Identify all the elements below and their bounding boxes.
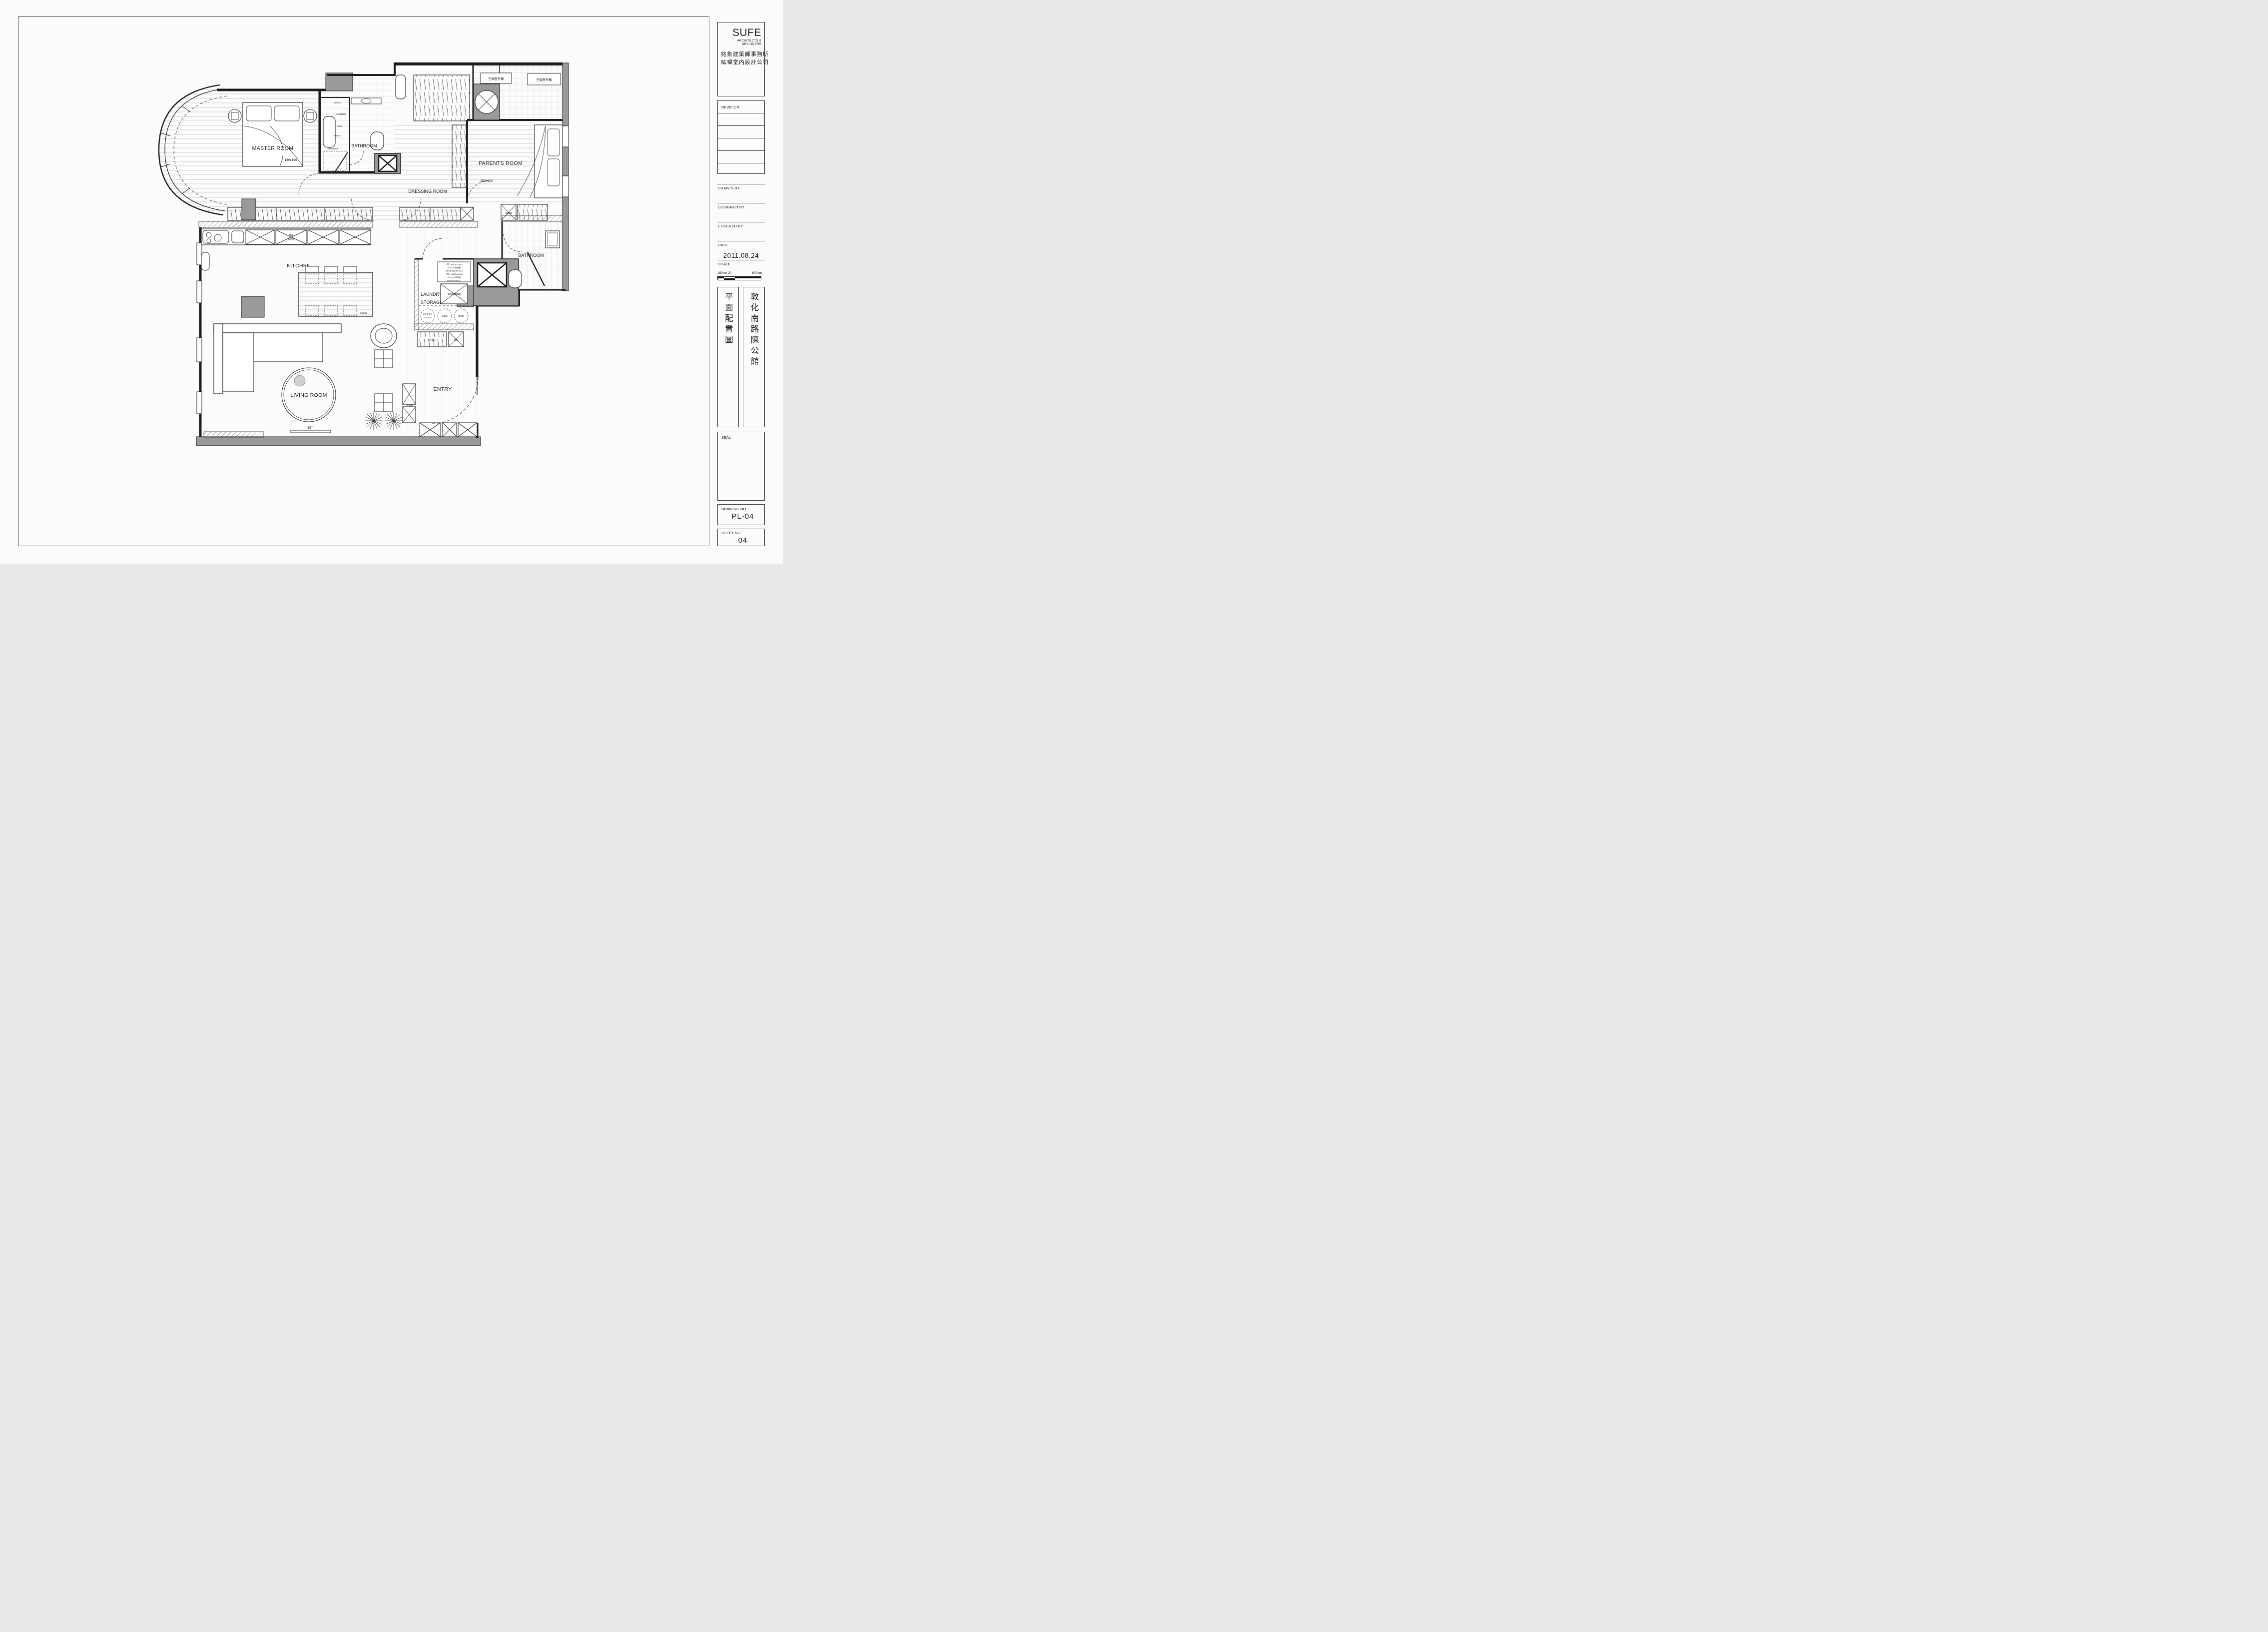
tv-55-label: 55" (308, 426, 313, 430)
ref-label-2: REF (353, 236, 358, 239)
laundry-label-2: STORAGE (421, 300, 443, 305)
drawing-sheet: MASTER ROOM 180x190 BATHTUB +25cm +0cm +… (0, 0, 783, 564)
drawing-no-label: DRAWING NO (721, 507, 764, 511)
checked-by-section: CHECKED BY (717, 222, 765, 241)
revision-row (718, 163, 764, 175)
bottom-exterior-wall (196, 437, 481, 446)
equip-cabinet-entry-label: 設備櫃 (407, 403, 413, 407)
phone-hub-label: 電話網路集線器 (448, 293, 461, 295)
master-room-label: MASTER ROOM (252, 145, 294, 151)
scale-marks-right: 600cm (752, 271, 762, 275)
living-window-3 (197, 338, 202, 362)
washer-note-6: W60*D59*H84.2 (447, 280, 461, 282)
level-0: +0cm (337, 125, 343, 127)
washer-note-3: W59.9*D63.5*H84.2 (446, 270, 463, 272)
dining-chairs (306, 266, 357, 272)
project-name-box: 敦化南路陳公館 (743, 287, 765, 427)
tv-55 (291, 430, 331, 433)
scale-bar (717, 276, 761, 280)
hall-basin (396, 75, 406, 99)
column-kitchen (241, 296, 264, 317)
designed-by-section: DESIGNED BY (717, 203, 765, 222)
pillow (246, 106, 271, 121)
project-name-vertical: 敦化南路陳公館 (748, 292, 760, 368)
parents-room-label: PARENTS ROOM (479, 160, 523, 166)
kitchen-cabinets (246, 230, 371, 244)
guest-bathroom-label: BATHROOM (518, 253, 544, 258)
firm-name: SUFE (721, 27, 761, 38)
parents-window-2 (563, 176, 568, 197)
revision-row (718, 151, 764, 163)
washer-note-4: 下層：WAS24460UC (445, 273, 463, 275)
firm-subtitle: ARCHITECTS & DESIGNERS (721, 39, 761, 46)
living-room-label: LIVING ROOM (290, 392, 327, 398)
sofa-chaise (223, 333, 254, 392)
ac-label-2: 空調室外機 (537, 78, 552, 82)
drawing-no-box: DRAWING NO PL-04 (717, 504, 765, 525)
ref-label-1: REF (321, 236, 326, 239)
parents-window-1 (563, 126, 568, 147)
dining-table (299, 272, 373, 316)
living-window-4 (197, 392, 202, 414)
revision-row (718, 138, 764, 151)
pillow (274, 106, 299, 121)
floor-plan: MASTER ROOM 180x190 BATHTUB +25cm +0cm +… (0, 0, 783, 564)
iron-label-2: H:150cm (424, 317, 431, 319)
sofa-arm (214, 324, 223, 394)
level-25: +25cm (334, 101, 341, 104)
date-value: 2011.08.24 (717, 252, 765, 259)
drawing-type-box: 平面配置圖 (717, 287, 739, 427)
pillow (548, 159, 560, 186)
bathtub-label: BATHTUB (336, 113, 346, 115)
revision-table: REVISION (717, 100, 765, 174)
date-label: DATE (717, 241, 765, 247)
scale-section: SCALE 100cm 30 600cm (717, 260, 765, 284)
dressing-closet (452, 125, 467, 187)
seal-label: SEAL (721, 435, 764, 440)
hall-closet (414, 75, 470, 121)
hatch-wall-bath (502, 215, 563, 221)
drawing-no-value: PL-04 (721, 512, 764, 521)
revision-row (718, 126, 764, 138)
designed-by-label: DESIGNED BY (717, 203, 765, 209)
sheet-no-label: SHEET NO (721, 531, 764, 535)
round-table (371, 324, 397, 348)
date-section: DATE 2011.08.24 (717, 241, 765, 260)
parents-bed-size: 150x190 (481, 179, 493, 183)
dining-size-label: 200x80 (360, 312, 367, 314)
pillow (548, 129, 560, 156)
entry-label: ENTRY (434, 386, 452, 392)
seal-box: SEAL (717, 432, 765, 501)
checked-by-label: CHECKED BY (717, 222, 765, 228)
shoe-cabinets (420, 423, 477, 437)
washer-note-1: 上層：WTC82100TC (445, 263, 463, 266)
cushion (294, 375, 305, 386)
fan-label: 電風扇 (458, 315, 464, 317)
oven-label-1: 烤箱 (289, 233, 293, 237)
hatch-wall-a (199, 221, 373, 227)
dressing-room-label: DRESSING ROOM (408, 189, 447, 194)
washer-note-5: BOSCH 洗衣機 (448, 276, 461, 279)
washer-note-2: BOSCH 烘衣機 (448, 266, 461, 269)
sofa-back (214, 324, 341, 333)
window-sill (204, 432, 264, 437)
hatch-wall-b (400, 221, 478, 227)
sheet-no-value: 04 (721, 536, 764, 545)
firm-cn-line2: 紘幃室內設計公司 (721, 59, 761, 67)
equip-cabinet-hall-label: 設備櫃 (506, 211, 512, 215)
vacuum-label: 吸塵器 (442, 315, 448, 317)
master-bed-size: 180x190 (285, 158, 297, 162)
column-mid (242, 199, 256, 220)
iron-label-1: 直立式熨斗 (423, 313, 433, 315)
sheet-no-box: SHEET NO 04 (717, 529, 765, 546)
bathtub-fixture (323, 116, 335, 147)
drawing-type-vertical: 平面配置圖 (722, 292, 734, 346)
nightstand-left (228, 109, 241, 122)
master-bathroom-label: BATHROOM (351, 143, 377, 148)
firm-cn-line1: 銘象建築師事務所 (721, 51, 761, 59)
shower-label: SHOWER (328, 147, 338, 150)
umbrella-label: 傘架 (454, 338, 458, 342)
nightstand-right (304, 109, 317, 122)
drawn-by-section: DRAWIN BY (717, 184, 765, 203)
level-60: +60cm (334, 134, 341, 137)
living-window-2 (197, 281, 202, 303)
golf-label: GOLF (428, 339, 437, 342)
ac-label-1: 空調室外機 (489, 77, 504, 81)
kitchen-sink (232, 231, 244, 243)
firm-logo-box: SUFE ARCHITECTS & DESIGNERS 銘象建築師事務所 紘幃室… (717, 22, 765, 96)
toilet-guest (509, 270, 522, 288)
revision-label: REVISION (718, 101, 764, 113)
scale-label: SCALE (717, 260, 765, 266)
oven-label-2: 紅酒櫃 (288, 237, 295, 241)
revision-row (718, 113, 764, 126)
scale-marks-left: 100cm 30 (717, 271, 732, 275)
wall-sink (201, 252, 209, 270)
drawn-by-label: DRAWIN BY (717, 184, 765, 190)
